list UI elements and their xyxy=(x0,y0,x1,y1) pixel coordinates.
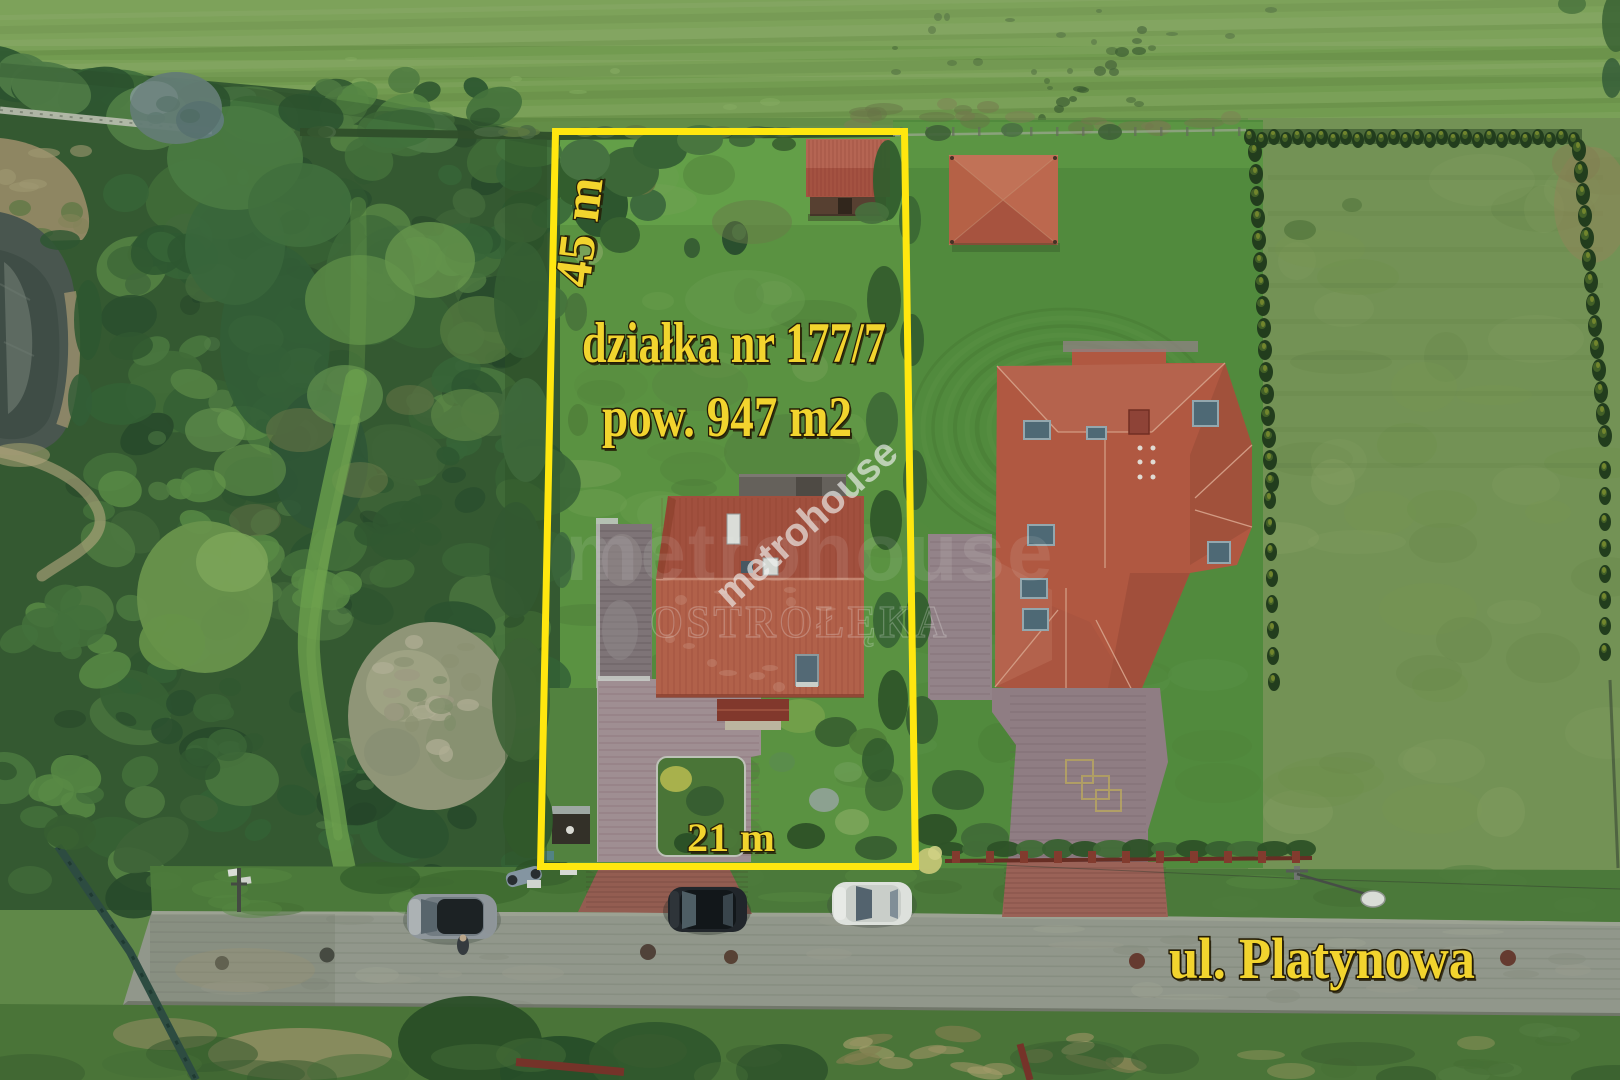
svg-text:pow. 947 m2: pow. 947 m2 xyxy=(602,386,852,449)
svg-text:działka nr 177/7: działka nr 177/7 xyxy=(582,312,886,375)
svg-text:21 m: 21 m xyxy=(687,815,775,860)
svg-text:ul. Platynowa: ul. Platynowa xyxy=(1169,926,1475,991)
